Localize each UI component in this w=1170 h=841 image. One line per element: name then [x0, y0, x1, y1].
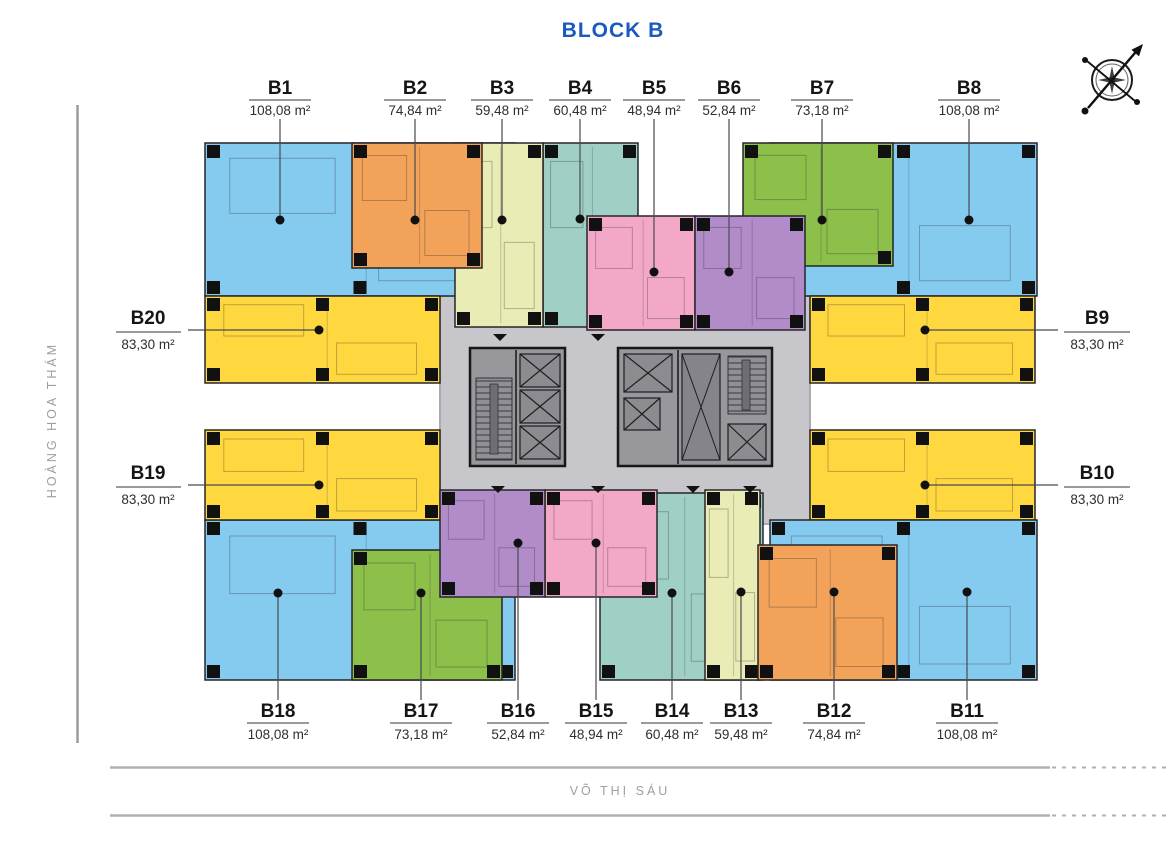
column-marker — [316, 432, 329, 445]
column-marker — [316, 368, 329, 381]
unit-dot — [498, 216, 507, 225]
unit-dot — [650, 268, 659, 277]
column-marker — [760, 547, 773, 560]
column-marker — [697, 315, 710, 328]
unit-area-label: 52,84 m² — [491, 727, 545, 742]
column-marker — [623, 145, 636, 158]
column-marker — [1020, 368, 1033, 381]
column-marker — [354, 253, 367, 266]
column-marker — [545, 145, 558, 158]
column-marker — [790, 218, 803, 231]
unit-id-label: B7 — [810, 78, 834, 99]
column-marker — [642, 492, 655, 505]
column-marker — [207, 368, 220, 381]
core-block-right — [618, 348, 772, 466]
column-marker — [467, 145, 480, 158]
column-marker — [354, 281, 367, 294]
column-marker — [207, 505, 220, 518]
column-marker — [528, 145, 541, 158]
street-label-left: HOÀNG HOA THÁM — [44, 342, 59, 498]
column-marker — [882, 547, 895, 560]
column-marker — [707, 492, 720, 505]
column-marker — [1022, 145, 1035, 158]
unit-id-label: B6 — [717, 78, 741, 99]
column-marker — [316, 505, 329, 518]
column-marker — [697, 218, 710, 231]
street-bottom: VÕ THỊ SÁU — [110, 768, 1168, 816]
column-marker — [545, 312, 558, 325]
unit-dot — [276, 216, 285, 225]
unit-B19-region — [205, 430, 440, 520]
column-marker — [642, 582, 655, 595]
column-marker — [316, 298, 329, 311]
unit-id-label: B18 — [261, 701, 296, 722]
unit-dot — [514, 539, 523, 548]
unit-area-label: 108,08 m² — [937, 727, 998, 742]
column-marker — [745, 145, 758, 158]
column-marker — [878, 145, 891, 158]
unit-area-label: 74,84 m² — [388, 103, 442, 118]
column-marker — [882, 665, 895, 678]
column-marker — [354, 665, 367, 678]
unit-dot — [315, 481, 324, 490]
unit-B13-region — [705, 490, 760, 680]
unit-dot — [592, 539, 601, 548]
column-marker — [207, 298, 220, 311]
unit-id-label: B19 — [131, 463, 166, 484]
unit-area-label: 52,84 m² — [702, 103, 756, 118]
column-marker — [207, 432, 220, 445]
unit-B15-region — [545, 490, 657, 597]
unit-B16-region — [440, 490, 545, 597]
unit-dot — [921, 326, 930, 335]
unit-area-label: 48,94 m² — [569, 727, 623, 742]
column-marker — [207, 145, 220, 158]
column-marker — [528, 312, 541, 325]
unit-id-label: B8 — [957, 78, 981, 99]
unit-dot — [411, 216, 420, 225]
column-marker — [589, 218, 602, 231]
column-marker — [790, 315, 803, 328]
unit-area-label: 59,48 m² — [714, 727, 768, 742]
column-marker — [878, 251, 891, 264]
unit-area-label: 60,48 m² — [645, 727, 699, 742]
unit-area-label: 83,30 m² — [1070, 492, 1124, 507]
column-marker — [897, 665, 910, 678]
column-marker — [1020, 298, 1033, 311]
unit-area-label: 59,48 m² — [475, 103, 529, 118]
unit-area-label: 83,30 m² — [121, 492, 175, 507]
unit-id-label: B4 — [568, 78, 593, 99]
stairs-icon — [476, 378, 512, 460]
column-marker — [1020, 505, 1033, 518]
column-marker — [602, 665, 615, 678]
column-marker — [487, 665, 500, 678]
unit-dot — [274, 589, 283, 598]
unit-dot — [965, 216, 974, 225]
unit-area-label: 48,94 m² — [627, 103, 681, 118]
column-marker — [916, 368, 929, 381]
column-marker — [547, 492, 560, 505]
unit-dot — [725, 268, 734, 277]
column-marker — [467, 253, 480, 266]
column-marker — [354, 522, 367, 535]
unit-B6-region — [695, 216, 805, 330]
unit-dot — [830, 588, 839, 597]
unit-B10-region — [810, 430, 1035, 520]
unit-id-label: B16 — [501, 701, 536, 722]
unit-area-label: 108,08 m² — [248, 727, 309, 742]
column-marker — [354, 145, 367, 158]
column-marker — [442, 582, 455, 595]
column-marker — [530, 492, 543, 505]
column-marker — [745, 665, 758, 678]
unit-id-label: B1 — [268, 78, 293, 99]
unit-dot — [417, 589, 426, 598]
unit-dot — [921, 481, 930, 490]
column-marker — [760, 665, 773, 678]
column-marker — [707, 665, 720, 678]
column-marker — [530, 582, 543, 595]
stairs-icon — [728, 356, 766, 414]
floorplan-canvas: BLOCK B — [0, 0, 1170, 841]
unit-id-label: B9 — [1085, 308, 1109, 329]
unit-id-label: B11 — [950, 701, 984, 722]
unit-area-label: 60,48 m² — [553, 103, 607, 118]
unit-id-label: B3 — [490, 78, 514, 99]
unit-dot — [818, 216, 827, 225]
column-marker — [772, 522, 785, 535]
core-block-left — [470, 348, 565, 466]
column-marker — [897, 145, 910, 158]
column-marker — [812, 432, 825, 445]
column-marker — [457, 312, 470, 325]
column-marker — [207, 665, 220, 678]
column-marker — [589, 315, 602, 328]
unit-dot — [668, 589, 677, 598]
column-marker — [442, 492, 455, 505]
unit-B20-region — [205, 296, 440, 383]
shaft-icon — [682, 354, 720, 460]
column-marker — [425, 505, 438, 518]
unit-area-label: 108,08 m² — [939, 103, 1000, 118]
street-left: HOÀNG HOA THÁM — [44, 105, 78, 743]
column-marker — [812, 505, 825, 518]
column-marker — [680, 218, 693, 231]
column-marker — [916, 432, 929, 445]
unit-B9-region — [810, 296, 1035, 383]
column-marker — [680, 315, 693, 328]
unit-id-label: B2 — [403, 78, 427, 99]
street-label-bottom: VÕ THỊ SÁU — [570, 783, 671, 798]
unit-id-label: B15 — [579, 701, 614, 722]
column-marker — [547, 582, 560, 595]
unit-id-label: B14 — [655, 701, 690, 722]
unit-area-label: 73,18 m² — [394, 727, 448, 742]
compass-rose-icon — [1082, 44, 1144, 115]
unit-id-label: B10 — [1080, 463, 1115, 484]
column-marker — [897, 522, 910, 535]
column-marker — [897, 281, 910, 294]
column-marker — [354, 552, 367, 565]
unit-dot — [576, 215, 585, 224]
elevator-bank-icon — [520, 354, 560, 459]
column-marker — [425, 368, 438, 381]
column-marker — [207, 281, 220, 294]
unit-id-label: B17 — [404, 701, 439, 722]
unit-B2-region — [352, 143, 482, 268]
column-marker — [425, 298, 438, 311]
column-marker — [207, 522, 220, 535]
column-marker — [1022, 522, 1035, 535]
column-marker — [425, 432, 438, 445]
unit-dot — [315, 326, 324, 335]
unit-dot — [737, 588, 746, 597]
column-marker — [1022, 665, 1035, 678]
unit-id-label: B5 — [642, 78, 667, 99]
page-title: BLOCK B — [562, 19, 665, 42]
column-marker — [812, 298, 825, 311]
column-marker — [916, 505, 929, 518]
unit-area-label: 83,30 m² — [121, 337, 175, 352]
floorplan-svg: BLOCK B — [0, 0, 1170, 841]
unit-area-label: 108,08 m² — [250, 103, 311, 118]
column-marker — [1020, 432, 1033, 445]
unit-area-label: 73,18 m² — [795, 103, 849, 118]
unit-area-label: 83,30 m² — [1070, 337, 1124, 352]
column-marker — [812, 368, 825, 381]
column-marker — [916, 298, 929, 311]
column-marker — [1022, 281, 1035, 294]
unit-dot — [963, 588, 972, 597]
unit-id-label: B20 — [131, 308, 166, 329]
unit-area-label: 74,84 m² — [807, 727, 861, 742]
unit-id-label: B13 — [724, 701, 759, 722]
column-marker — [745, 492, 758, 505]
unit-B12-region — [758, 545, 897, 680]
unit-id-label: B12 — [817, 701, 852, 722]
unit-B5-region — [587, 216, 695, 330]
